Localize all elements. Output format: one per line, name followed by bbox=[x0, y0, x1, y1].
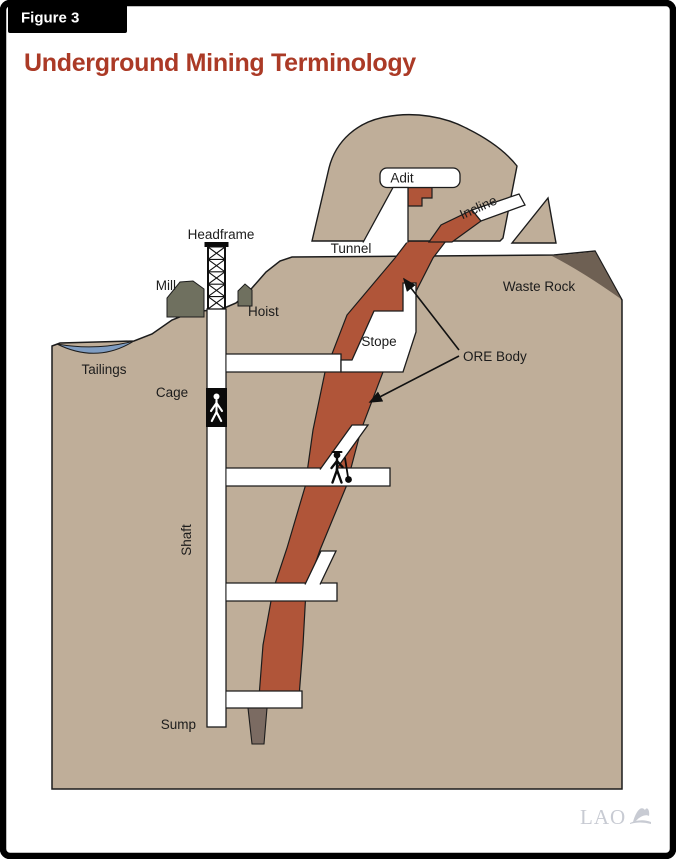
label-hoist: Hoist bbox=[248, 304, 279, 319]
mining-diagram: Adit Incline Tunnel Headframe Mill Hoist… bbox=[0, 0, 676, 859]
figure-page: Adit Incline Tunnel Headframe Mill Hoist… bbox=[0, 0, 676, 859]
mine-shaft bbox=[207, 309, 226, 727]
ground-mass bbox=[52, 251, 622, 789]
level-4-tunnel bbox=[227, 691, 303, 708]
label-tunnel: Tunnel bbox=[331, 241, 372, 256]
label-headframe: Headframe bbox=[188, 227, 255, 242]
page-title: Underground Mining Terminology bbox=[24, 49, 416, 77]
label-shaft: Shaft bbox=[179, 524, 194, 556]
level-2-tunnel bbox=[227, 468, 391, 486]
lao-logo: LAO bbox=[580, 805, 651, 829]
cage-box bbox=[206, 388, 227, 427]
level-3-tunnel bbox=[227, 583, 338, 601]
label-tailings: Tailings bbox=[81, 362, 126, 377]
lao-emblem-icon bbox=[630, 808, 651, 824]
figure-tab-label: Figure 3 bbox=[21, 10, 79, 27]
ore-vein-lower-stub bbox=[248, 708, 267, 744]
mountain bbox=[312, 115, 556, 243]
hoist-building bbox=[238, 284, 252, 306]
label-sump: Sump bbox=[161, 717, 196, 732]
label-ore-body: ORE Body bbox=[463, 349, 527, 364]
label-cage: Cage bbox=[156, 385, 188, 400]
lao-logo-text: LAO bbox=[580, 805, 626, 829]
label-stope: Stope bbox=[361, 334, 396, 349]
label-waste-rock: Waste Rock bbox=[503, 279, 576, 294]
level-1-tunnel bbox=[227, 354, 342, 372]
label-adit: Adit bbox=[390, 171, 414, 186]
label-mill: Mill bbox=[156, 278, 176, 293]
headframe-tower bbox=[205, 242, 229, 309]
